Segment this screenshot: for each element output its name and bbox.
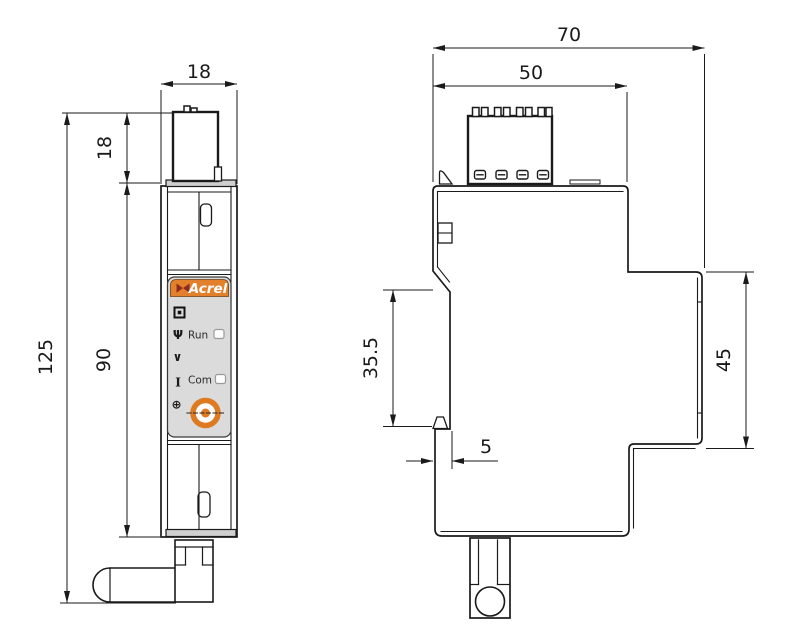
com-led: [216, 375, 226, 384]
dim-rail-depth-value: 5: [480, 436, 492, 458]
antenna: [93, 568, 175, 602]
dim-front-section-value: 45: [713, 348, 735, 372]
terminal-tab: [215, 167, 222, 181]
front-antenna-connector: [175, 540, 213, 602]
seal-tab: [440, 171, 453, 184]
acrel-brand-text: Acrel: [188, 281, 228, 297]
front-top-terminal: [173, 112, 218, 181]
run-led: [214, 330, 224, 339]
side-body-profile: [433, 186, 702, 536]
dim-total-width-value: 70: [557, 24, 581, 46]
terminal-bump: [191, 108, 197, 112]
technical-drawing: Acrel Ψ ∨ I ⊕ Run Com: [0, 0, 803, 641]
drawing-canvas: Acrel Ψ ∨ I ⊕ Run Com: [0, 0, 803, 641]
side-view: [433, 108, 702, 619]
dim-rail-section-value: 35.5: [360, 337, 382, 379]
dim-width-value: 18: [187, 61, 211, 83]
display-icon-dot: [178, 311, 182, 315]
run-label: Run: [188, 330, 208, 342]
current-icon: I: [175, 376, 181, 390]
com-label: Com: [188, 375, 212, 387]
rail-clip-tooth: [433, 417, 448, 429]
terminal-icon: ⊕: [171, 398, 181, 412]
wireless-icon: Ψ: [173, 328, 183, 342]
voltage-icon: ∨: [173, 350, 183, 364]
antenna-hinge: [476, 587, 505, 616]
dim-total-height-value: 125: [35, 339, 57, 375]
dim-body-height-value: 90: [93, 348, 115, 372]
top-slot: [570, 180, 600, 184]
terminal-bump: [184, 106, 190, 112]
front-bottom-plate: [166, 530, 236, 537]
dim-terminal-width-value: 50: [519, 62, 543, 84]
dim-terminal-height-value: 18: [94, 136, 116, 160]
